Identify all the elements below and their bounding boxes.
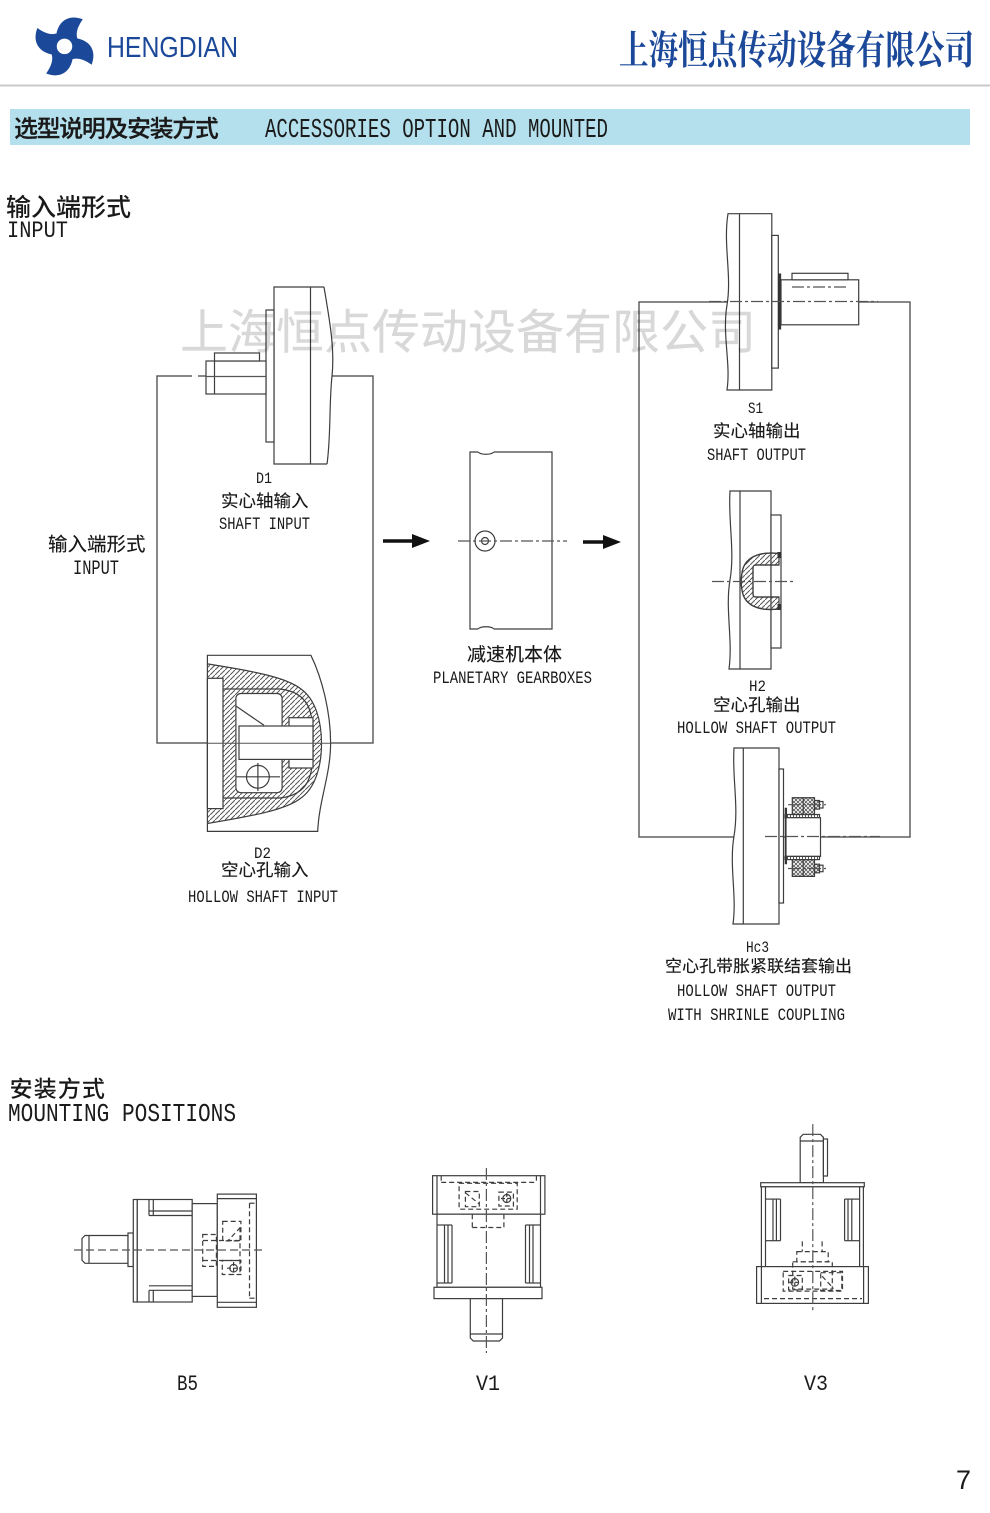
- svg-text:7: 7: [956, 1465, 971, 1495]
- svg-text:WITH SHRINLE COUPLING: WITH SHRINLE COUPLING: [668, 1006, 845, 1026]
- svg-text:ACCESSORIES OPTION AND MOUNTED: ACCESSORIES OPTION AND MOUNTED: [265, 116, 608, 146]
- svg-text:D2: D2: [254, 845, 271, 863]
- svg-text:HOLLOW SHAFT OUTPUT: HOLLOW SHAFT OUTPUT: [677, 982, 836, 1002]
- svg-text:H2: H2: [749, 678, 766, 696]
- svg-text:INPUT: INPUT: [7, 218, 68, 244]
- svg-text:HOLLOW SHAFT INPUT: HOLLOW SHAFT INPUT: [188, 888, 338, 908]
- svg-text:MOUNTING POSITIONS: MOUNTING POSITIONS: [8, 1099, 236, 1129]
- svg-text:Hc3: Hc3: [746, 939, 769, 957]
- svg-text:S1: S1: [748, 400, 763, 418]
- svg-text:V1: V1: [476, 1372, 500, 1397]
- svg-text:SHAFT INPUT: SHAFT INPUT: [219, 515, 310, 535]
- svg-text:HENGDIAN: HENGDIAN: [107, 32, 238, 64]
- svg-text:D1: D1: [256, 470, 272, 488]
- svg-text:INPUT: INPUT: [73, 558, 119, 581]
- svg-text:SHAFT OUTPUT: SHAFT OUTPUT: [707, 446, 806, 466]
- svg-text:V3: V3: [804, 1372, 828, 1397]
- svg-text:B5: B5: [177, 1372, 198, 1397]
- svg-text:HOLLOW SHAFT OUTPUT: HOLLOW SHAFT OUTPUT: [677, 719, 836, 739]
- svg-text:PLANETARY GEARBOXES: PLANETARY GEARBOXES: [433, 669, 592, 689]
